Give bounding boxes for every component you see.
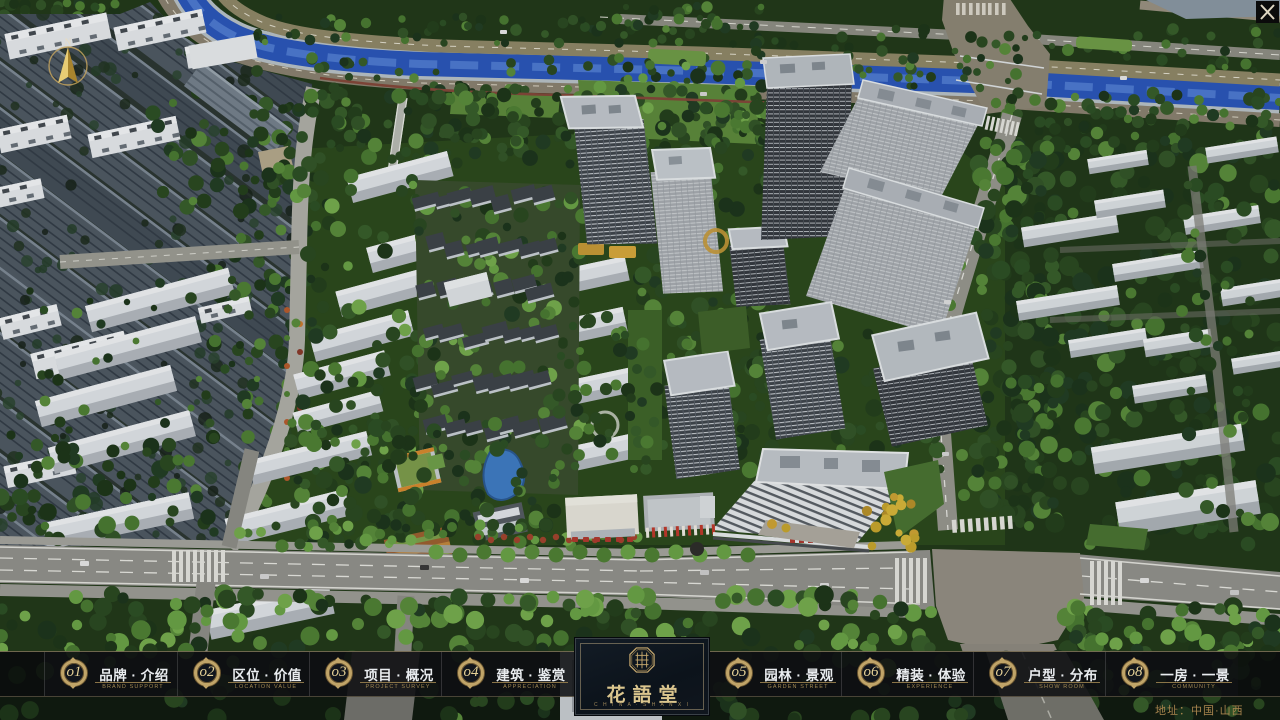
svg-text:N: N xyxy=(65,37,72,47)
